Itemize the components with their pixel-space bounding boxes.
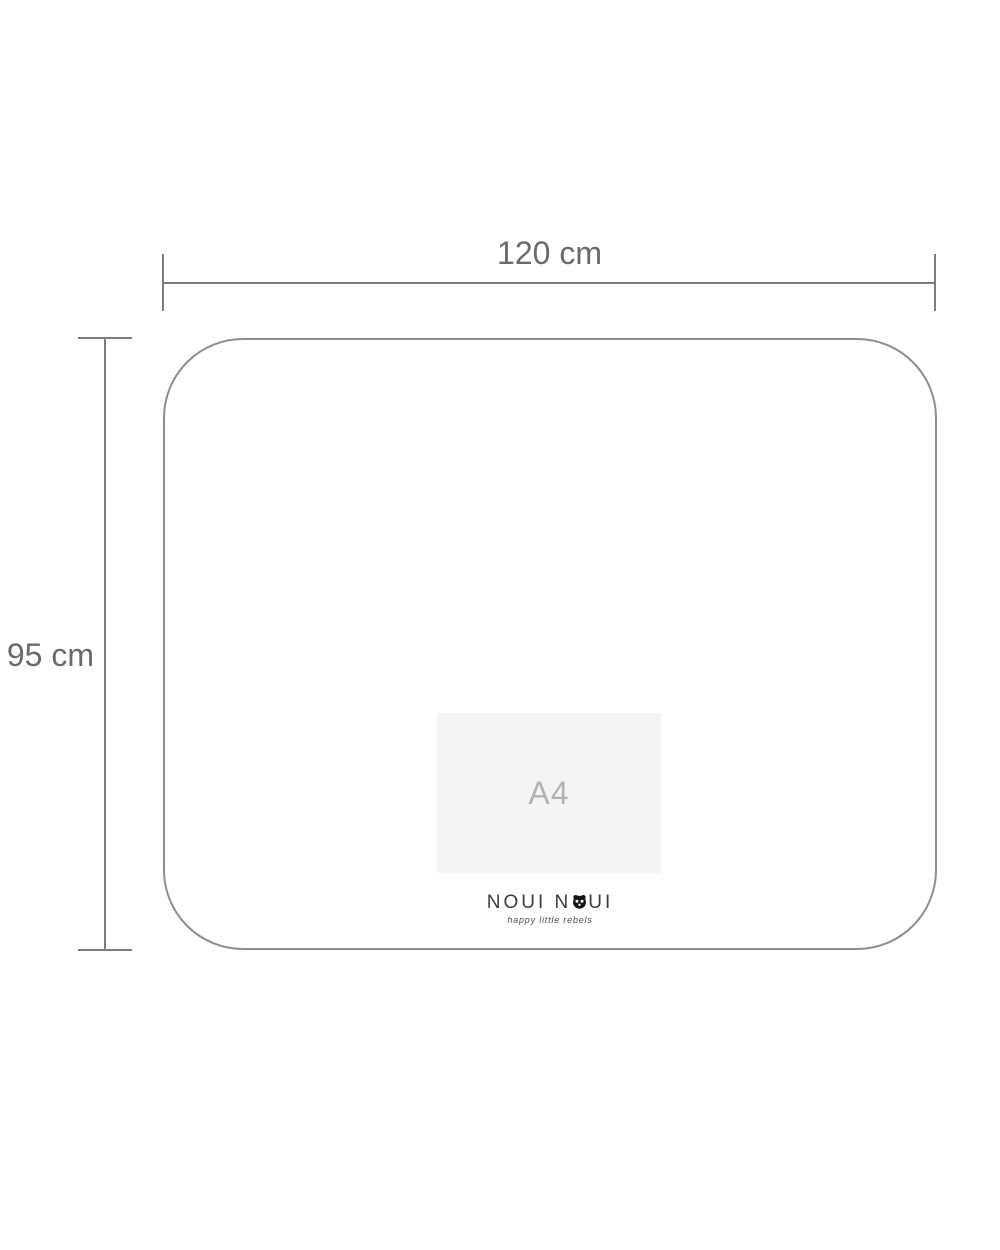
width-dimension-label: 120 cm <box>163 233 936 273</box>
height-dimension-line <box>104 338 106 950</box>
brand-name: NOUI N UI <box>163 892 937 914</box>
brand-name-right: UI <box>588 892 613 913</box>
height-dimension-cap-top <box>78 337 132 339</box>
height-dimension-cap-bottom <box>78 949 132 951</box>
brand-logo: NOUI N UI happy little rebels <box>163 892 937 925</box>
panda-face-icon <box>572 893 587 908</box>
width-dimension-line <box>163 282 936 284</box>
a4-size-reference: A4 <box>437 713 661 873</box>
width-dimension-tick-left <box>162 254 164 311</box>
a4-label: A4 <box>528 775 569 812</box>
brand-tagline: happy little rebels <box>163 915 937 925</box>
brand-name-left: NOUI N <box>487 892 572 913</box>
height-dimension-label: 95 cm <box>0 635 94 675</box>
product-dimension-diagram: 120 cm 95 cm A4 NOUI N UI happy little r… <box>0 0 1000 1250</box>
width-dimension-tick-right <box>934 254 936 311</box>
